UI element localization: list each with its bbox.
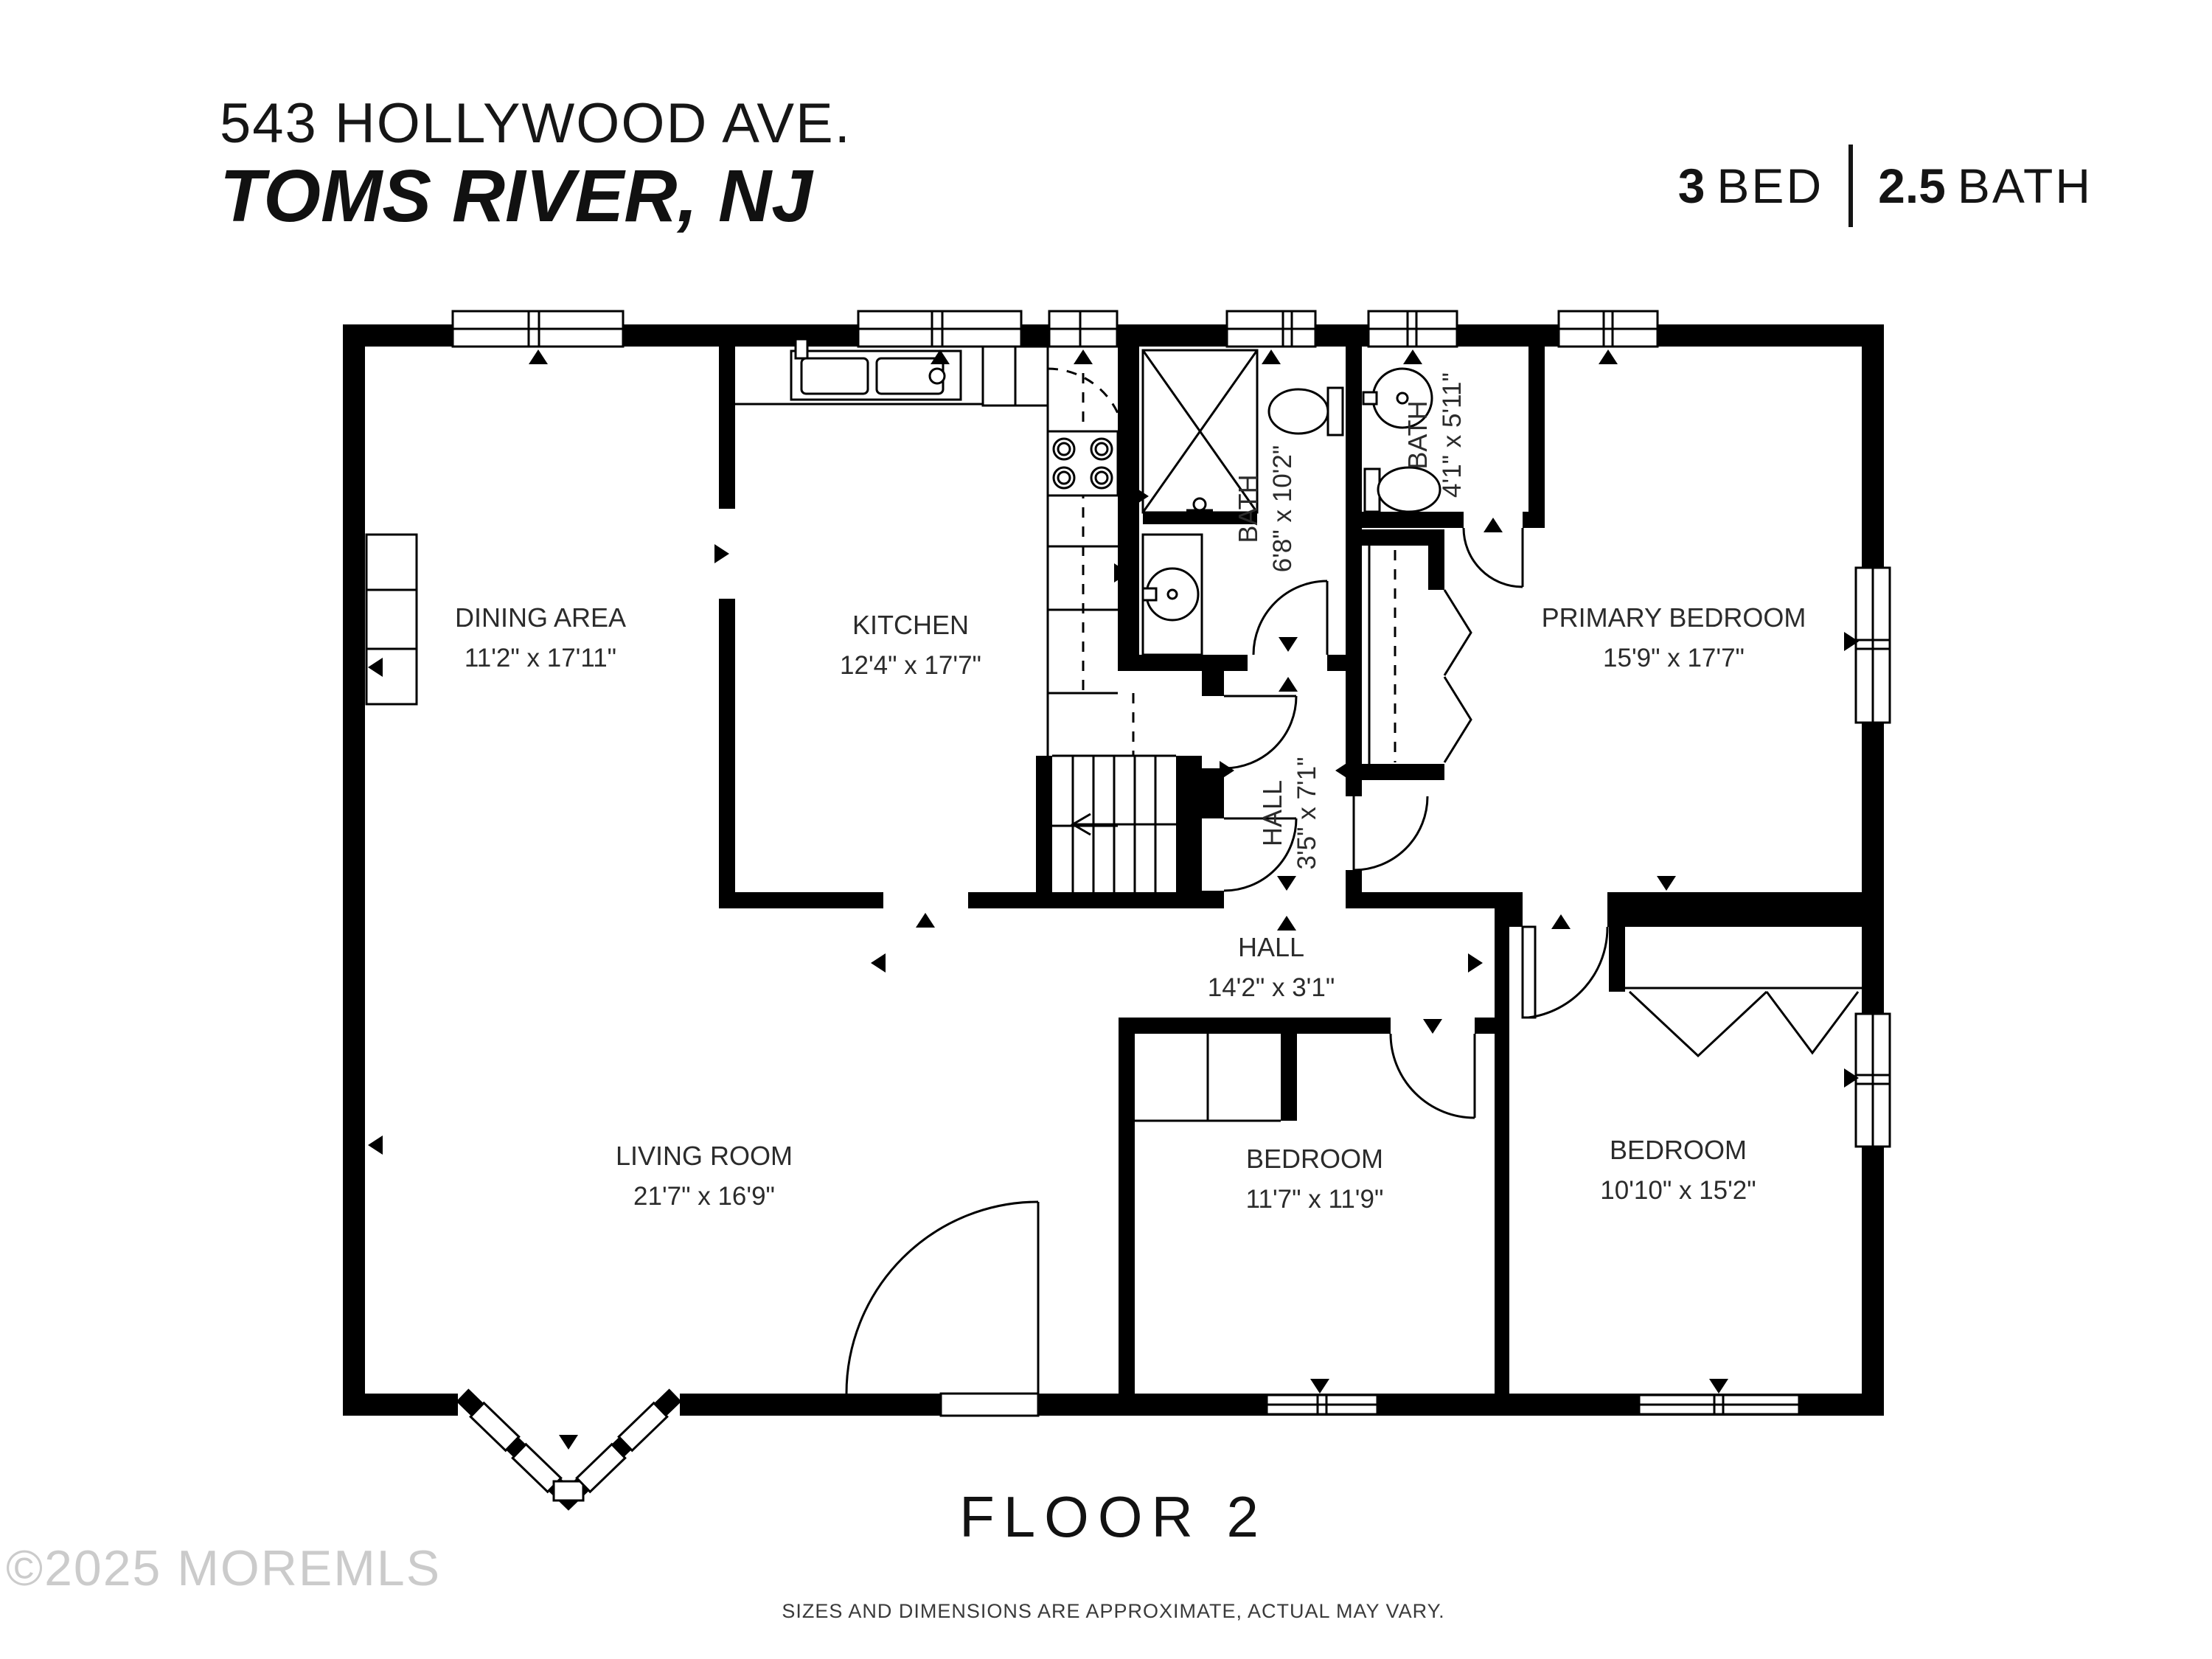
beds-label: BED	[1717, 158, 1823, 214]
room-label-bed1: BEDROOM	[1246, 1144, 1383, 1174]
room-label-bath1: BATH	[1233, 474, 1263, 543]
dining-cabinets	[366, 535, 417, 704]
room-label-kitchen: KITCHEN	[852, 610, 969, 640]
room-label-hall14: HALL	[1238, 932, 1304, 962]
kitchen-sink	[791, 339, 961, 400]
bath1-toilet	[1269, 388, 1343, 435]
room-label-bath2: 4'1" x 5'11"	[1438, 372, 1467, 498]
bed-bath-divider	[1848, 145, 1853, 227]
floor-plan-drawing: DINING AREA11'2" x 17'11"KITCHEN12'4" x …	[332, 306, 1895, 1530]
room-label-bath1: 6'8" x 10'2"	[1268, 445, 1297, 573]
floor-plan-page: 543 HOLLYWOOD AVE. TOMS RIVER, NJ 3 BED …	[0, 0, 2212, 1659]
room-label-bed2: BEDROOM	[1610, 1135, 1747, 1165]
room-label-primary: PRIMARY BEDROOM	[1542, 602, 1806, 633]
stairs	[1052, 693, 1176, 892]
room-label-bath2: BATH	[1402, 400, 1433, 469]
room-label-dining: DINING AREA	[455, 602, 626, 633]
bed-bath-summary: 3 BED 2.5 BATH	[1678, 145, 2093, 227]
baths-label: BATH	[1958, 158, 2093, 214]
bath1-vanity-sink	[1143, 535, 1202, 655]
room-label-living: LIVING ROOM	[616, 1141, 793, 1171]
room-label-dining: 11'2" x 17'11"	[465, 644, 616, 672]
room-label-bed2: 10'10" x 15'2"	[1600, 1176, 1756, 1205]
room-label-bed1: 11'7" x 11'9"	[1246, 1185, 1384, 1214]
room-label-living: 21'7" x 16'9"	[633, 1182, 775, 1211]
stove	[1048, 431, 1118, 495]
mls-watermark: ©2025 MOREMLS	[6, 1540, 441, 1597]
disclaimer-text: SIZES AND DIMENSIONS ARE APPROXIMATE, AC…	[0, 1600, 2212, 1623]
bath2-toilet	[1365, 467, 1440, 512]
beds-count: 3	[1678, 158, 1705, 214]
title-block: 543 HOLLYWOOD AVE. TOMS RIVER, NJ	[220, 94, 852, 235]
room-label-primary: 15'9" x 17'7"	[1603, 644, 1745, 672]
room-label-hall3: 3'5" x 7'1"	[1293, 757, 1321, 869]
room-label-kitchen: 12'4" x 17'7"	[840, 651, 981, 680]
room-label-hall3: HALL	[1257, 780, 1287, 846]
baths-count: 2.5	[1878, 158, 1946, 214]
address-line2: TOMS RIVER, NJ	[220, 158, 852, 235]
address-line1: 543 HOLLYWOOD AVE.	[220, 94, 852, 153]
room-label-hall14: 14'2" x 3'1"	[1208, 973, 1335, 1002]
